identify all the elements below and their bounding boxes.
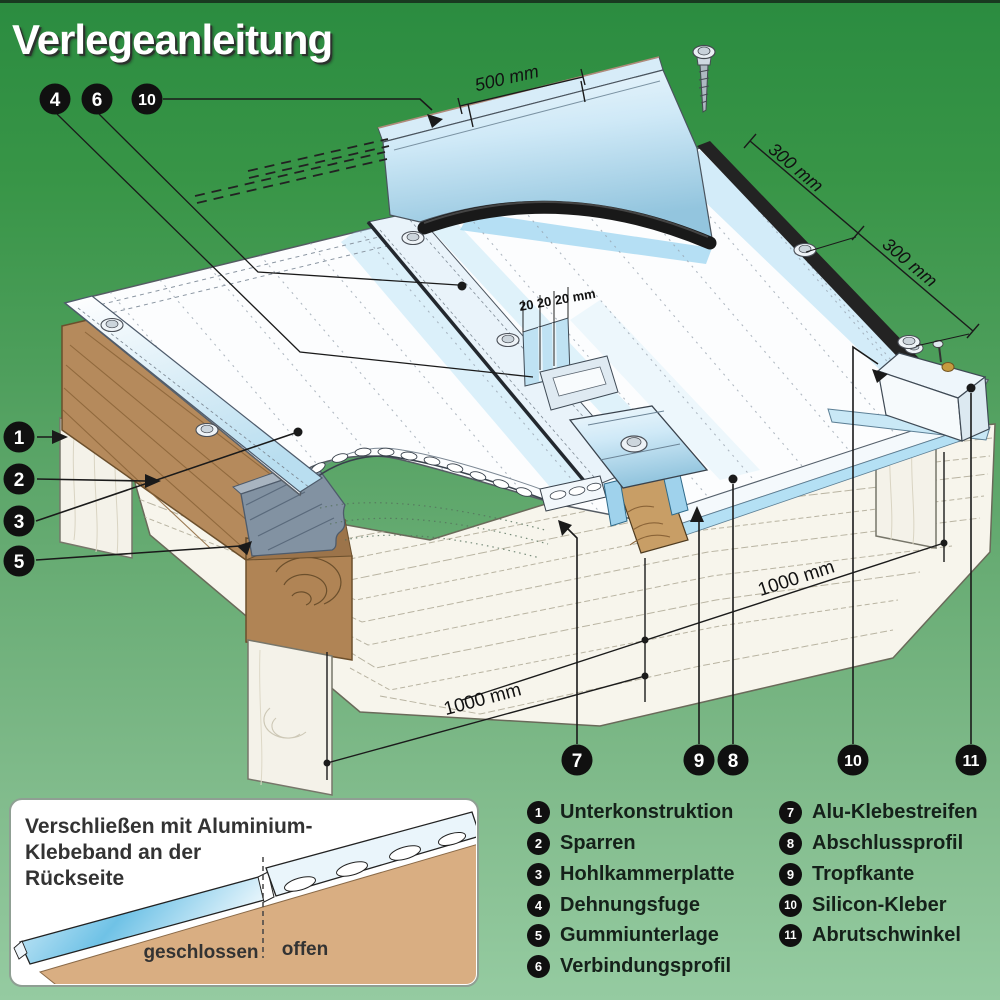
callout-4: 4	[40, 84, 71, 115]
callout-3: 3	[4, 506, 35, 537]
callout-6: 6	[82, 84, 113, 115]
assembly-diagram: 500 mm 300 mm 300 mm 20 20 20 mm 1000 mm…	[0, 0, 1000, 1000]
svg-text:9: 9	[694, 751, 705, 772]
floating-screw-icon	[693, 46, 715, 113]
hidden-profile-dashes	[195, 139, 389, 203]
callout-9: 9	[684, 745, 715, 776]
gold-screw-icon	[942, 363, 954, 372]
inset-note-line3: Rückseite	[25, 867, 124, 890]
inset-note-line1: Verschließen mit Aluminium-	[25, 815, 312, 838]
callout-11: 11	[956, 745, 987, 776]
screw-icon	[898, 336, 920, 349]
callout-1: 1	[4, 422, 35, 453]
callout-10-top: 10	[132, 84, 163, 115]
svg-text:8: 8	[728, 751, 739, 772]
svg-text:7: 7	[572, 751, 583, 772]
inset-closed-label: geschlossen	[143, 942, 258, 963]
screw-icon	[196, 424, 218, 437]
svg-text:10: 10	[138, 92, 156, 109]
svg-text:1: 1	[14, 428, 25, 449]
svg-text:10: 10	[844, 753, 862, 770]
svg-text:3: 3	[14, 512, 25, 533]
profile-screw-icon	[621, 436, 647, 452]
svg-text:2: 2	[14, 470, 25, 491]
dim-300b-label: 300 mm	[879, 234, 942, 291]
screw-icon	[497, 334, 519, 347]
callout-2: 2	[4, 464, 35, 495]
callout-8: 8	[718, 745, 749, 776]
callout-7: 7	[562, 745, 593, 776]
svg-text:4: 4	[50, 90, 61, 111]
inset-open-label: offen	[282, 939, 328, 960]
installation-guide-poster: Verlegeanleitung	[0, 0, 1000, 1000]
callout-10-bottom: 10	[838, 745, 869, 776]
screw-icon	[402, 232, 424, 245]
front-post	[248, 640, 332, 795]
svg-text:6: 6	[92, 90, 103, 111]
page-title: Verlegeanleitung	[12, 16, 332, 64]
svg-text:11: 11	[963, 753, 980, 770]
screw-icon	[101, 319, 123, 332]
callout-5: 5	[4, 546, 35, 577]
inset-note-line2: Klebeband an der	[25, 841, 201, 864]
inset-box: Verschließen mit Aluminium- Klebeband an…	[10, 799, 482, 988]
top-border-strip	[0, 0, 1000, 3]
dim-300a-label: 300 mm	[765, 139, 828, 196]
svg-text:5: 5	[14, 552, 25, 573]
